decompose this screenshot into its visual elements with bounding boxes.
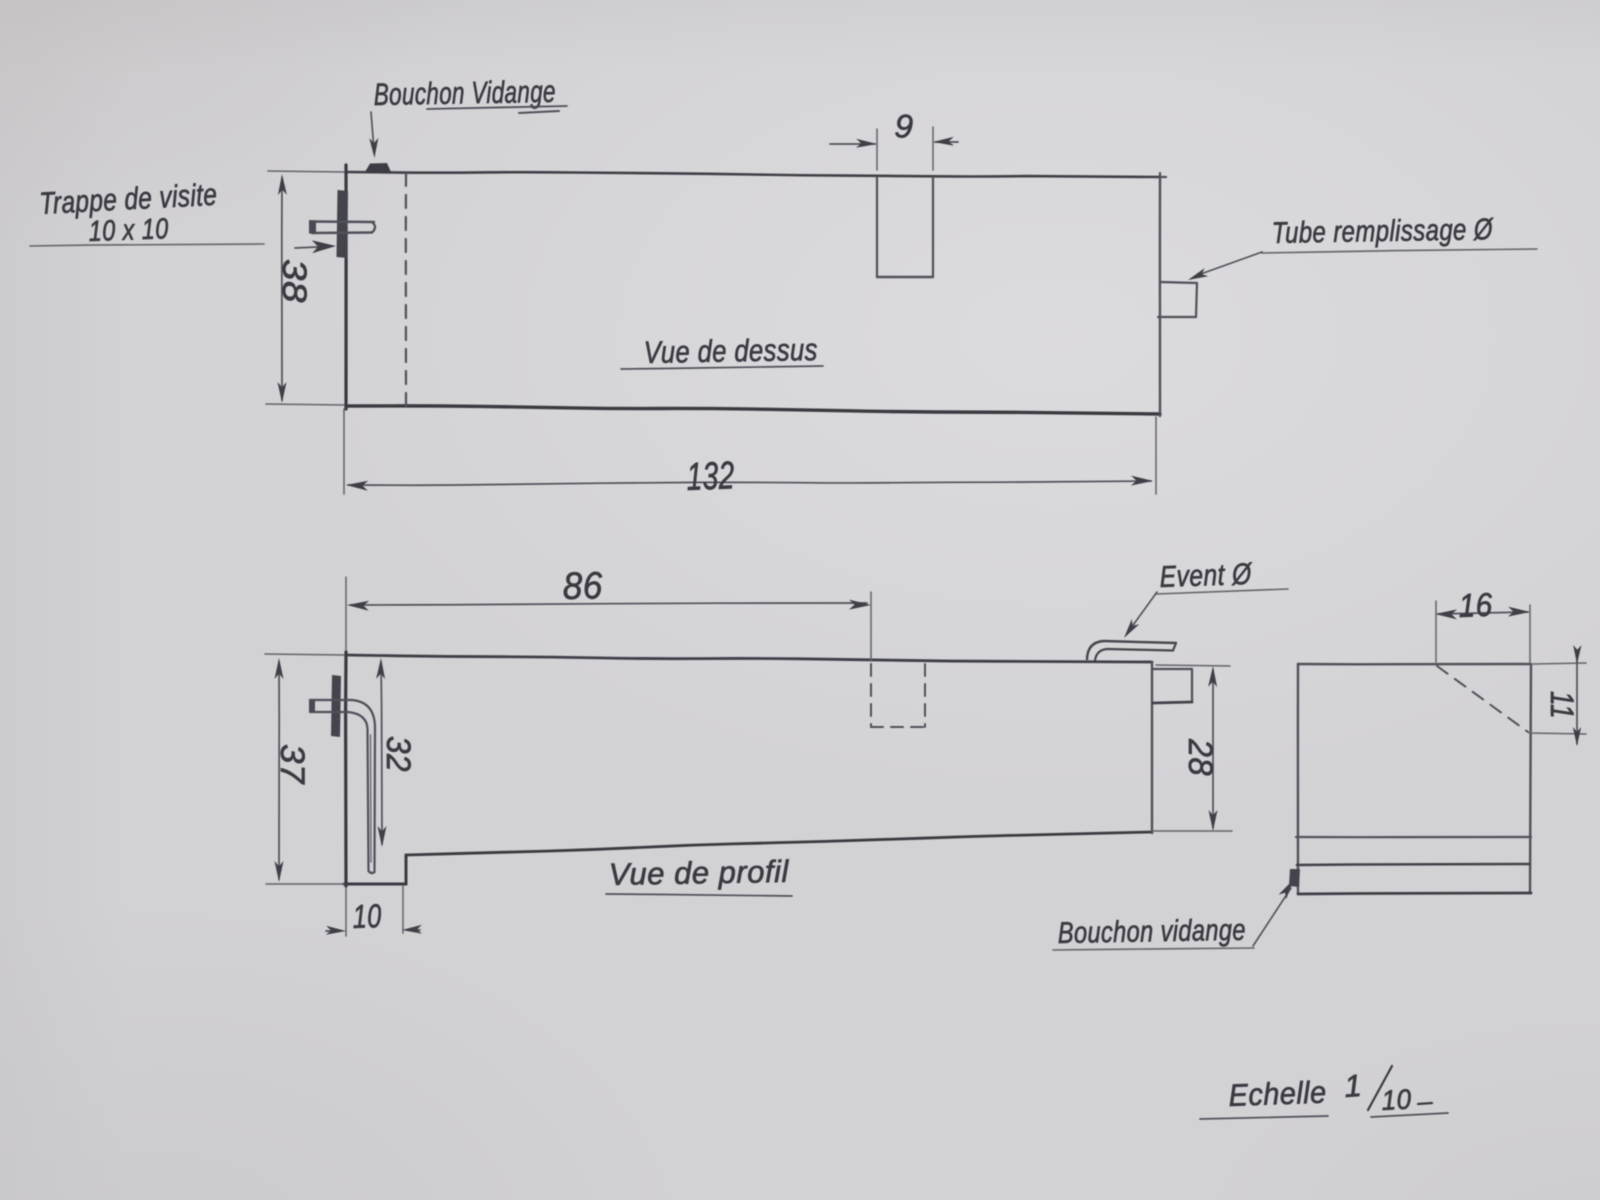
svg-text:28: 28 [1181, 738, 1219, 776]
svg-text:Vue de dessus: Vue de dessus [644, 332, 819, 370]
svg-text:Bouchon vidange: Bouchon vidange [1058, 914, 1247, 950]
svg-text:Vue de profil: Vue de profil [609, 854, 790, 892]
svg-text:9: 9 [894, 107, 915, 145]
svg-text:Tube remplissage Ø: Tube remplissage Ø [1272, 213, 1494, 250]
svg-text:1: 1 [1343, 1068, 1363, 1104]
svg-text:10 x 10: 10 x 10 [88, 213, 169, 248]
svg-text:10: 10 [352, 897, 382, 935]
svg-text:11: 11 [1544, 691, 1580, 719]
svg-text:16: 16 [1458, 586, 1493, 624]
svg-text:Echelle: Echelle [1228, 1075, 1327, 1113]
svg-text:86: 86 [562, 565, 603, 608]
svg-text:38: 38 [275, 259, 313, 303]
svg-text:132: 132 [686, 454, 735, 499]
svg-text:10: 10 [1381, 1083, 1413, 1116]
svg-text:32: 32 [379, 736, 417, 772]
svg-text:Event Ø: Event Ø [1159, 558, 1253, 594]
svg-text:37: 37 [273, 744, 311, 785]
